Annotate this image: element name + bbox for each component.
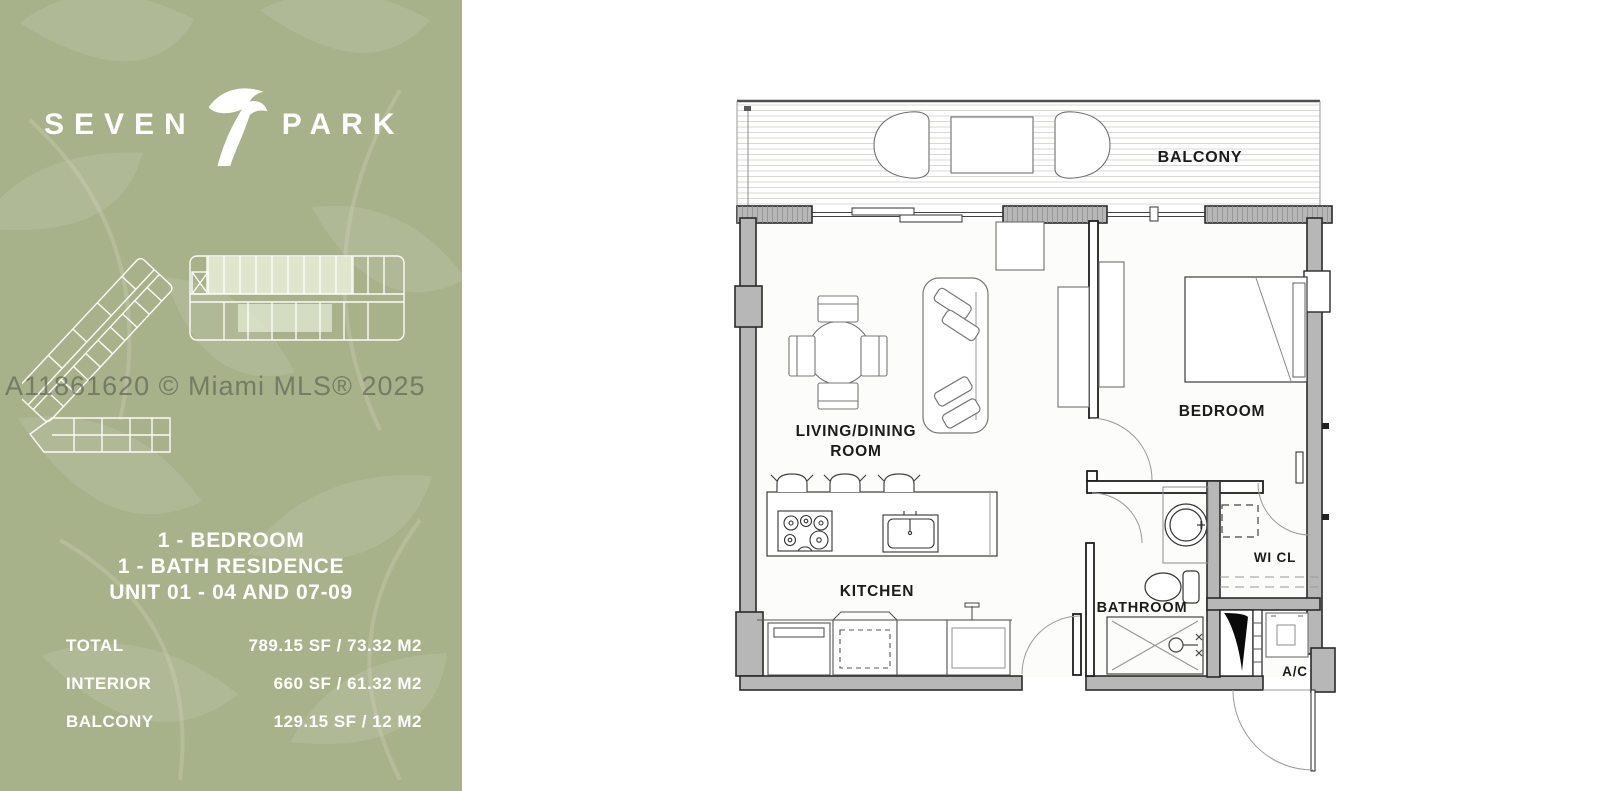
utility-shaft [1220, 610, 1262, 676]
closet-label: WI CL [1254, 550, 1296, 565]
closet-bottom-wall [1207, 598, 1320, 610]
sofa [923, 278, 988, 433]
entry-door-leaf [1073, 614, 1081, 675]
bed [1185, 277, 1307, 382]
side-table [996, 222, 1044, 270]
living-dining-label-line2: ROOM [830, 443, 881, 460]
bathroom-sink [1165, 504, 1207, 546]
front-door-swing [1233, 690, 1313, 770]
bedroom-label: BEDROOM [1179, 403, 1266, 420]
range [833, 620, 897, 675]
bed-pillow [1293, 283, 1305, 377]
dresser [1099, 262, 1124, 387]
base-cabinet [897, 620, 947, 675]
floor-plan: BALCONY [0, 0, 1600, 791]
ac-unit [1266, 613, 1308, 657]
bedroom-window [1304, 271, 1330, 312]
kitchen-sink [883, 511, 938, 552]
closet-door-leaf [1296, 452, 1303, 483]
bar-stools [771, 474, 920, 492]
bathroom-label: BATHROOM [1097, 600, 1188, 616]
balcony-table [951, 117, 1033, 173]
bathroom-closet-wall [1207, 481, 1220, 677]
ac-label: A/C [1282, 664, 1308, 679]
balcony-label: BALCONY [1158, 149, 1243, 166]
bathroom-left-wall [1086, 543, 1094, 676]
living-bedroom-wall [1089, 221, 1098, 418]
sliding-door [852, 208, 914, 215]
balcony-area: BALCONY [737, 101, 1320, 207]
kitchen-label: KITCHEN [840, 583, 915, 600]
living-dining-label-line1: LIVING/DINING [796, 423, 917, 440]
tv-console [1058, 287, 1089, 407]
floor-plan-page: SEVEN PARK [0, 0, 1600, 791]
toilet [1145, 571, 1199, 603]
front-door-leaf [1311, 690, 1315, 771]
